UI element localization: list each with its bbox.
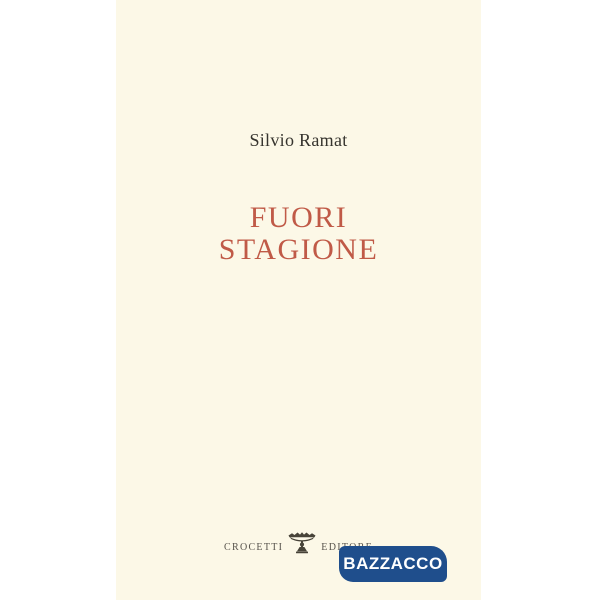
publisher-word-left: CROCETTI (224, 542, 283, 555)
book-cover-page: Silvio Ramat FUORI STAGIONE CROCETTI (116, 0, 481, 600)
book-cover-photo: Silvio Ramat FUORI STAGIONE CROCETTI (0, 0, 600, 600)
book-title: FUORI STAGIONE (116, 202, 481, 266)
bookseller-watermark-badge: BAZZACCO (339, 546, 447, 582)
book-title-line2: STAGIONE (116, 234, 481, 266)
author-name: Silvio Ramat (116, 130, 481, 151)
bookseller-watermark-label: BAZZACCO (343, 554, 442, 574)
crocetti-tazza-emblem-icon (287, 531, 317, 555)
book-title-line1: FUORI (116, 202, 481, 234)
